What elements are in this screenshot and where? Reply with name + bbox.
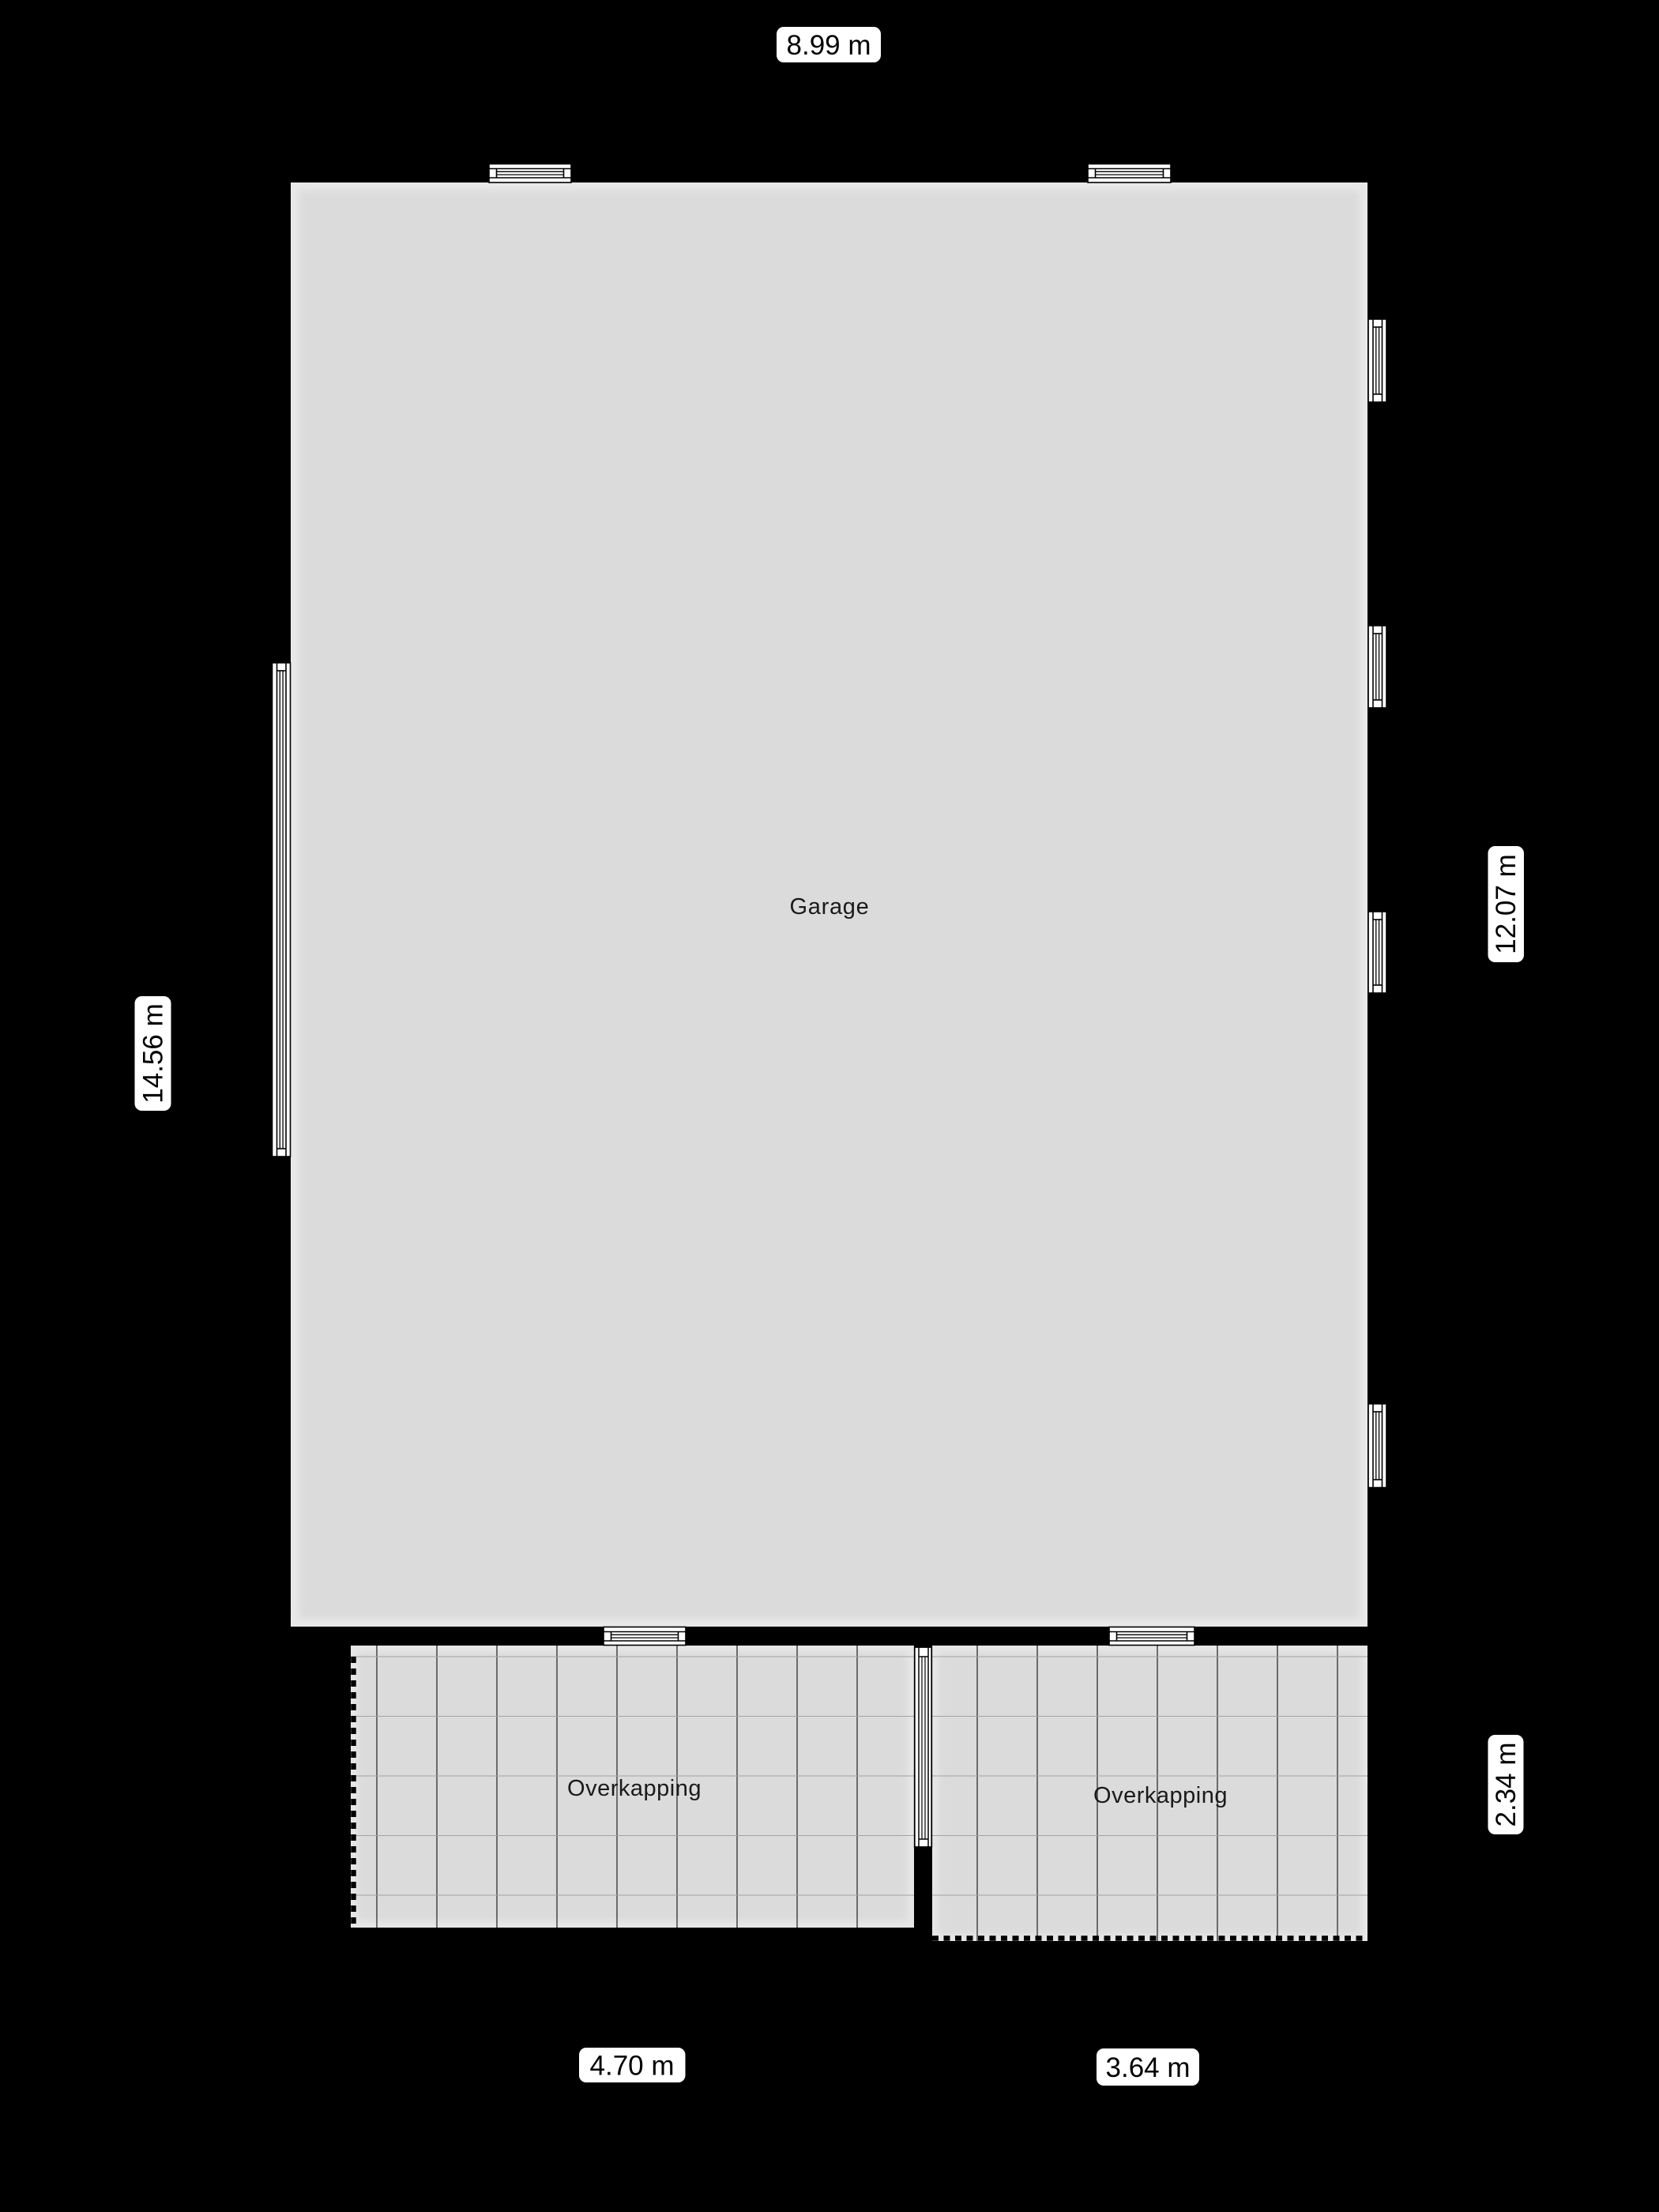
svg-text:4.70 m: 4.70 m: [590, 2051, 675, 2082]
svg-text:14.56 m: 14.56 m: [138, 1003, 169, 1103]
svg-text:Garage: Garage: [790, 894, 870, 920]
svg-text:Overkapping: Overkapping: [567, 1776, 702, 1801]
svg-text:3.64 m: 3.64 m: [1106, 2052, 1191, 2083]
svg-text:12.07 m: 12.07 m: [1491, 854, 1522, 954]
svg-text:8.99 m: 8.99 m: [787, 30, 871, 61]
svg-text:2.34 m: 2.34 m: [1491, 1743, 1522, 1827]
svg-text:Overkapping: Overkapping: [1093, 1783, 1228, 1808]
